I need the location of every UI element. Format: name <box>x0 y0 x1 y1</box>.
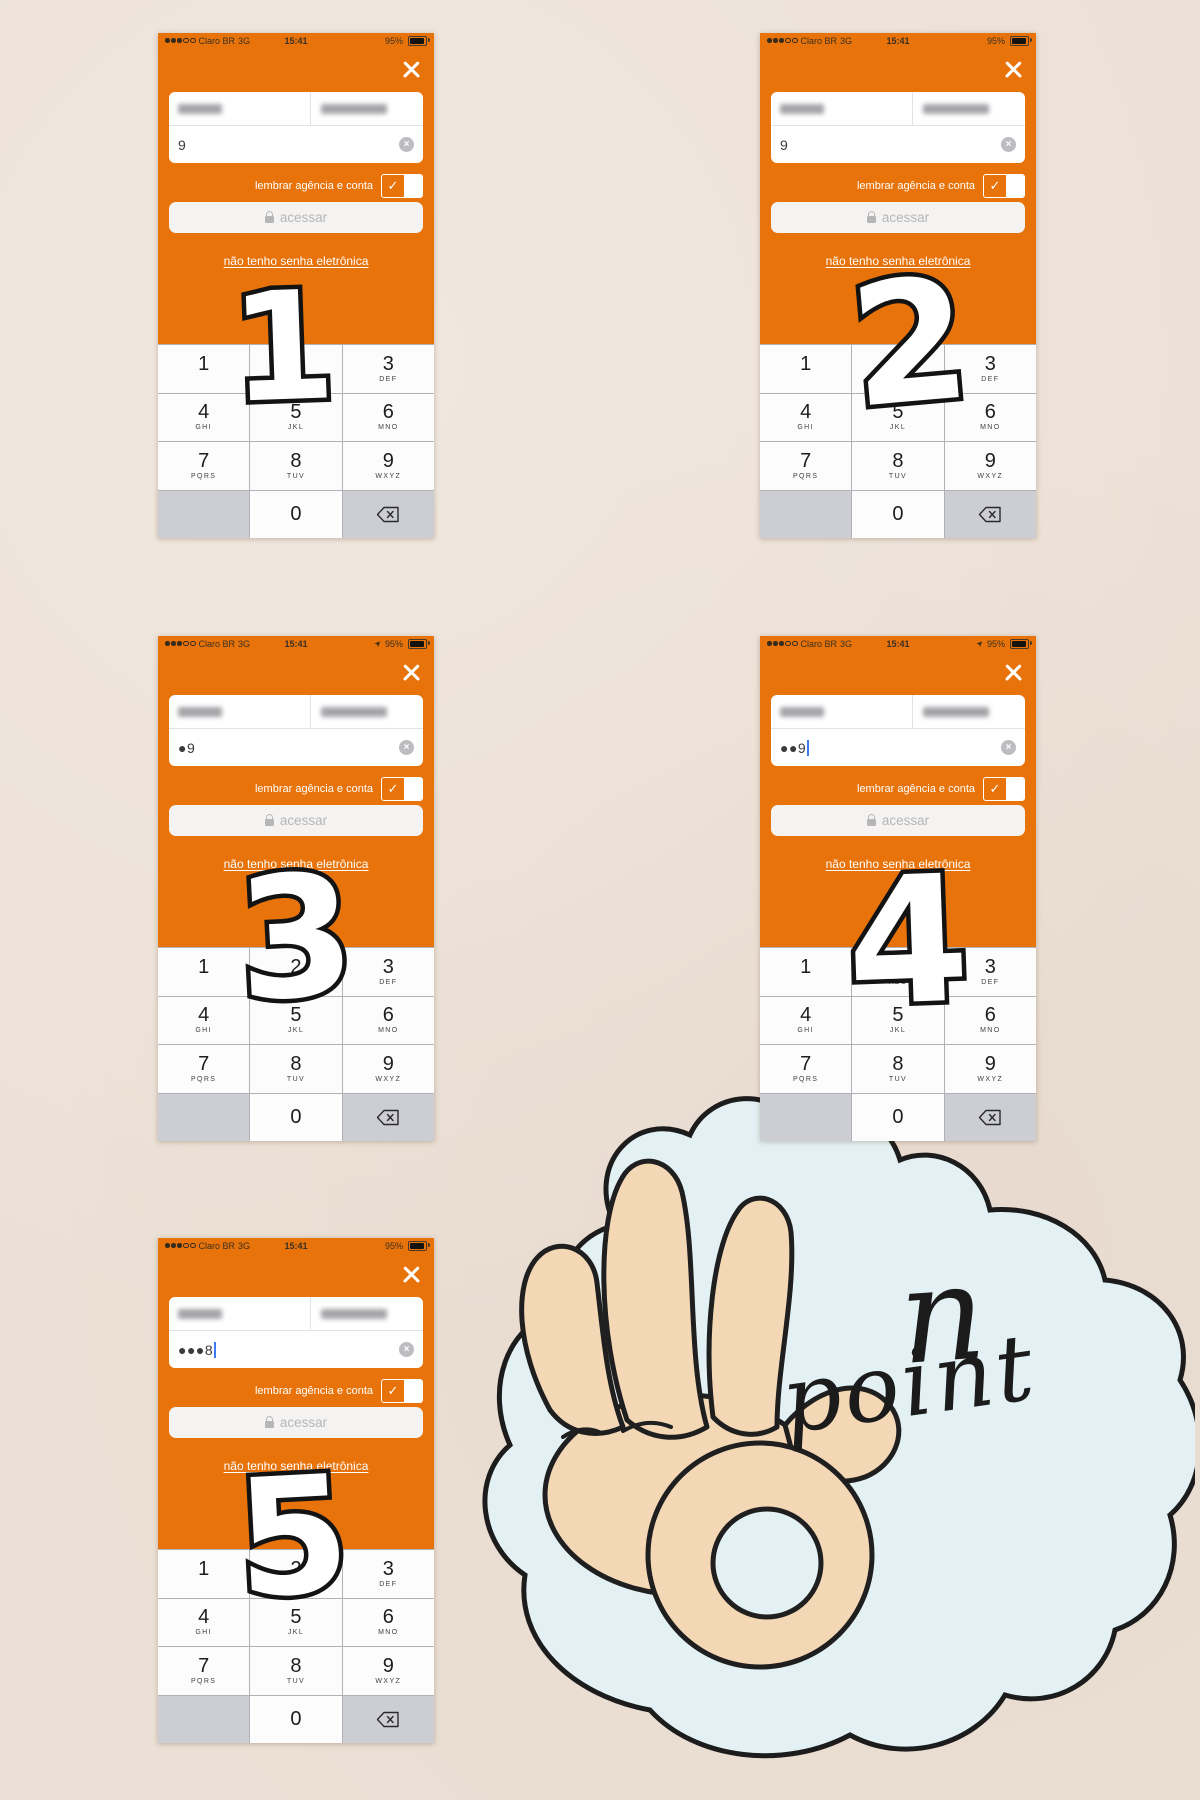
key-8[interactable]: 8TUV <box>250 1647 341 1695</box>
clear-field-icon[interactable]: × <box>399 740 414 755</box>
battery-percent-label: 95% <box>385 1241 403 1251</box>
backspace-icon <box>376 1711 400 1728</box>
key-1[interactable]: 1 <box>158 948 249 996</box>
battery-icon <box>408 36 427 46</box>
ok-circle-hole <box>713 1509 821 1617</box>
key-9[interactable]: 9WXYZ <box>343 1647 434 1695</box>
ok-hand-sticker: n point <box>455 1095 1195 1775</box>
agencia-input[interactable] <box>771 695 913 728</box>
key-backspace[interactable] <box>343 1696 434 1744</box>
conta-input[interactable] <box>913 695 1025 728</box>
conta-value-blurred <box>321 707 387 717</box>
key-8[interactable]: 8TUV <box>852 442 943 490</box>
key-9[interactable]: 9WXYZ <box>945 1045 1036 1093</box>
key-7[interactable]: 7PQRS <box>158 442 249 490</box>
close-icon[interactable] <box>402 1265 421 1284</box>
senha-input[interactable]: 9 × <box>771 126 1025 163</box>
key-5[interactable]: 5JKL <box>250 1599 341 1647</box>
check-icon: ✓ <box>984 175 1006 197</box>
agencia-input[interactable] <box>771 92 913 125</box>
conta-input[interactable] <box>311 695 423 728</box>
remember-row: lembrar agência e conta ✓ <box>255 777 423 801</box>
key-backspace[interactable] <box>945 491 1036 539</box>
remember-toggle[interactable]: ✓ <box>381 174 423 198</box>
battery-icon <box>408 639 427 649</box>
backspace-icon <box>376 1109 400 1126</box>
remember-label: lembrar agência e conta <box>857 783 975 795</box>
status-bar: Claro BR 3G 15:41 ➤ 95% <box>158 1238 434 1253</box>
numeric-keypad: 1 2ABC 3DEF 4GHI 5JKL 6MNO 7PQRS 8TUV 9W… <box>158 947 434 1141</box>
numeric-keypad: 1 2ABC 3DEF 4GHI 5JKL 6MNO 7PQRS 8TUV 9W… <box>760 344 1036 538</box>
login-fields-card: ●9 × <box>169 695 423 766</box>
toggle-knob <box>404 1380 422 1402</box>
close-icon[interactable] <box>1004 663 1023 682</box>
remember-toggle[interactable]: ✓ <box>983 777 1025 801</box>
key-1[interactable]: 1 <box>760 345 851 393</box>
key-9[interactable]: 9WXYZ <box>343 442 434 490</box>
acessar-button[interactable]: acessar <box>169 1407 423 1438</box>
conta-input[interactable] <box>311 1297 423 1330</box>
location-arrow-icon: ➤ <box>975 638 985 648</box>
key-2[interactable]: 2ABC <box>250 345 341 393</box>
lock-icon <box>265 1421 274 1428</box>
agencia-value-blurred <box>780 707 824 717</box>
acessar-label: acessar <box>882 210 929 225</box>
senha-input[interactable]: ●●9 × <box>771 729 1025 766</box>
close-icon[interactable] <box>402 60 421 79</box>
status-bar: Claro BR 3G 15:41 ➤ 95% <box>760 33 1036 48</box>
senha-value: 9 <box>178 137 186 153</box>
agencia-value-blurred <box>178 1309 222 1319</box>
key-8[interactable]: 8TUV <box>250 1045 341 1093</box>
numeric-keypad: 1 2ABC 3DEF 4GHI 5JKL 6MNO 7PQRS 8TUV 9W… <box>158 344 434 538</box>
keypad-blank <box>158 491 249 539</box>
clear-field-icon[interactable]: × <box>1001 740 1016 755</box>
remember-row: lembrar agência e conta ✓ <box>255 1379 423 1403</box>
network-type-label: 3G <box>238 36 250 46</box>
carrier-label: Claro BR <box>199 36 236 46</box>
key-6[interactable]: 6MNO <box>343 394 434 442</box>
backspace-icon <box>978 506 1002 523</box>
numeric-keypad: 1 2ABC 3DEF 4GHI 5JKL 6MNO 7PQRS 8TUV 9W… <box>760 947 1036 1141</box>
key-4[interactable]: 4GHI <box>760 997 851 1045</box>
clock-label: 15:41 <box>886 36 909 46</box>
acessar-button[interactable]: acessar <box>169 202 423 233</box>
key-8[interactable]: 8TUV <box>250 442 341 490</box>
clear-field-icon[interactable]: × <box>399 1342 414 1357</box>
no-password-link[interactable]: não tenho senha eletrônica <box>158 254 434 268</box>
clock-label: 15:41 <box>284 1241 307 1251</box>
clock-label: 15:41 <box>284 639 307 649</box>
check-icon: ✓ <box>382 1380 404 1402</box>
key-2[interactable]: 2ABC <box>250 1550 341 1598</box>
key-5[interactable]: 5JKL <box>250 997 341 1045</box>
login-fields-card: 9 × <box>169 92 423 163</box>
close-icon[interactable] <box>1004 60 1023 79</box>
check-icon: ✓ <box>382 778 404 800</box>
signal-strength-icon <box>165 1243 196 1249</box>
key-3[interactable]: 3DEF <box>945 345 1036 393</box>
remember-toggle[interactable]: ✓ <box>381 1379 423 1403</box>
acessar-label: acessar <box>280 813 327 828</box>
remember-label: lembrar agência e conta <box>857 180 975 192</box>
keypad-blank <box>760 491 851 539</box>
check-icon: ✓ <box>382 175 404 197</box>
toggle-knob <box>1006 175 1024 197</box>
key-4[interactable]: 4GHI <box>760 394 851 442</box>
check-icon: ✓ <box>984 778 1006 800</box>
conta-value-blurred <box>923 104 989 114</box>
network-type-label: 3G <box>238 1241 250 1251</box>
conta-input[interactable] <box>311 92 423 125</box>
key-4[interactable]: 4GHI <box>158 997 249 1045</box>
acessar-label: acessar <box>280 210 327 225</box>
battery-percent-label: 95% <box>987 639 1005 649</box>
conta-value-blurred <box>321 104 387 114</box>
remember-row: lembrar agência e conta ✓ <box>255 174 423 198</box>
location-arrow-icon: ➤ <box>373 638 383 648</box>
carrier-label: Claro BR <box>801 639 838 649</box>
toggle-knob <box>404 175 422 197</box>
key-6[interactable]: 6MNO <box>343 1599 434 1647</box>
status-bar: Claro BR 3G 15:41 ➤ 95% <box>760 636 1036 651</box>
toggle-knob <box>1006 778 1024 800</box>
key-4[interactable]: 4GHI <box>158 394 249 442</box>
acessar-button[interactable]: acessar <box>771 202 1025 233</box>
senha-input[interactable]: 9 × <box>169 126 423 163</box>
senha-value: ●●●8 <box>178 1342 213 1358</box>
conta-input[interactable] <box>913 92 1025 125</box>
phone-screenshot-2: Claro BR 3G 15:41 ➤ 95% 9 × <box>760 33 1036 538</box>
battery-icon <box>1010 36 1029 46</box>
key-backspace[interactable] <box>343 1094 434 1142</box>
key-5[interactable]: 5JKL <box>852 394 943 442</box>
no-password-link[interactable]: não tenho senha eletrônica <box>158 1459 434 1473</box>
key-9[interactable]: 9WXYZ <box>343 1045 434 1093</box>
key-backspace[interactable] <box>343 491 434 539</box>
remember-toggle[interactable]: ✓ <box>983 174 1025 198</box>
key-0[interactable]: 0 <box>852 1094 943 1142</box>
keypad-blank <box>760 1094 851 1142</box>
agencia-value-blurred <box>780 104 824 114</box>
carrier-label: Claro BR <box>801 36 838 46</box>
agencia-input[interactable] <box>169 92 311 125</box>
clock-label: 15:41 <box>284 36 307 46</box>
close-icon[interactable] <box>402 663 421 682</box>
keypad-blank <box>158 1696 249 1744</box>
acessar-button[interactable]: acessar <box>771 805 1025 836</box>
conta-value-blurred <box>923 707 989 717</box>
remember-row: lembrar agência e conta ✓ <box>857 777 1025 801</box>
network-type-label: 3G <box>840 36 852 46</box>
phone-screenshot-4: Claro BR 3G 15:41 ➤ 95% ●●9 × <box>760 636 1036 1141</box>
key-3[interactable]: 3DEF <box>945 948 1036 996</box>
key-1[interactable]: 1 <box>158 1550 249 1598</box>
backspace-icon <box>376 506 400 523</box>
key-0[interactable]: 0 <box>250 491 341 539</box>
login-fields-card: ●●●8 × <box>169 1297 423 1368</box>
remember-toggle[interactable]: ✓ <box>381 777 423 801</box>
login-fields-card: 9 × <box>771 92 1025 163</box>
key-2[interactable]: 2ABC <box>852 345 943 393</box>
phone-screenshot-3: Claro BR 3G 15:41 ➤ 95% ●9 × <box>158 636 434 1141</box>
text-cursor <box>807 740 809 756</box>
battery-icon <box>1010 639 1029 649</box>
acessar-label: acessar <box>280 1415 327 1430</box>
key-7[interactable]: 7PQRS <box>760 442 851 490</box>
lock-icon <box>867 216 876 223</box>
signal-strength-icon <box>165 641 196 647</box>
key-3[interactable]: 3DEF <box>343 948 434 996</box>
senha-value: ●9 <box>178 740 195 756</box>
battery-percent-label: 95% <box>385 639 403 649</box>
collage-canvas: n point Claro BR 3G 15:41 ➤ 95% 9 <box>0 0 1200 1800</box>
phone-screenshot-1: Claro BR 3G 15:41 ➤ 95% 9 × <box>158 33 434 538</box>
key-7[interactable]: 7PQRS <box>158 1045 249 1093</box>
key-4[interactable]: 4GHI <box>158 1599 249 1647</box>
key-3[interactable]: 3DEF <box>343 345 434 393</box>
network-type-label: 3G <box>238 639 250 649</box>
signal-strength-icon <box>165 38 196 44</box>
battery-percent-label: 95% <box>987 36 1005 46</box>
clear-field-icon[interactable]: × <box>1001 137 1016 152</box>
phone-screenshot-5: Claro BR 3G 15:41 ➤ 95% ●●●8 × <box>158 1238 434 1743</box>
key-backspace[interactable] <box>945 1094 1036 1142</box>
text-cursor <box>214 1342 216 1358</box>
key-7[interactable]: 7PQRS <box>760 1045 851 1093</box>
agencia-value-blurred <box>178 104 222 114</box>
senha-value: ●●9 <box>780 740 806 756</box>
signal-strength-icon <box>767 641 798 647</box>
battery-percent-label: 95% <box>385 36 403 46</box>
key-5[interactable]: 5JKL <box>852 997 943 1045</box>
agencia-input[interactable] <box>169 1297 311 1330</box>
key-6[interactable]: 6MNO <box>343 997 434 1045</box>
battery-icon <box>408 1241 427 1251</box>
acessar-label: acessar <box>882 813 929 828</box>
key-0[interactable]: 0 <box>250 1094 341 1142</box>
key-0[interactable]: 0 <box>852 491 943 539</box>
key-5[interactable]: 5JKL <box>250 394 341 442</box>
remember-label: lembrar agência e conta <box>255 180 373 192</box>
key-7[interactable]: 7PQRS <box>158 1647 249 1695</box>
status-bar: Claro BR 3G 15:41 ➤ 95% <box>158 33 434 48</box>
key-2[interactable]: 2ABC <box>250 948 341 996</box>
remember-row: lembrar agência e conta ✓ <box>857 174 1025 198</box>
key-8[interactable]: 8TUV <box>852 1045 943 1093</box>
remember-label: lembrar agência e conta <box>255 783 373 795</box>
senha-input[interactable]: ●9 × <box>169 729 423 766</box>
lock-icon <box>867 819 876 826</box>
lock-icon <box>265 819 274 826</box>
remember-label: lembrar agência e conta <box>255 1385 373 1397</box>
clock-label: 15:41 <box>886 639 909 649</box>
conta-value-blurred <box>321 1309 387 1319</box>
numeric-keypad: 1 2ABC 3DEF 4GHI 5JKL 6MNO 7PQRS 8TUV 9W… <box>158 1549 434 1743</box>
no-password-link[interactable]: não tenho senha eletrônica <box>760 254 1036 268</box>
login-fields-card: ●●9 × <box>771 695 1025 766</box>
lock-icon <box>265 216 274 223</box>
agencia-value-blurred <box>178 707 222 717</box>
signal-strength-icon <box>767 38 798 44</box>
toggle-knob <box>404 778 422 800</box>
carrier-label: Claro BR <box>199 1241 236 1251</box>
network-type-label: 3G <box>840 639 852 649</box>
key-6[interactable]: 6MNO <box>945 997 1036 1045</box>
key-1[interactable]: 1 <box>158 345 249 393</box>
key-0[interactable]: 0 <box>250 1696 341 1744</box>
key-2[interactable]: 2ABC <box>852 948 943 996</box>
status-bar: Claro BR 3G 15:41 ➤ 95% <box>158 636 434 651</box>
clear-field-icon[interactable]: × <box>399 137 414 152</box>
senha-input[interactable]: ●●●8 × <box>169 1331 423 1368</box>
key-9[interactable]: 9WXYZ <box>945 442 1036 490</box>
key-1[interactable]: 1 <box>760 948 851 996</box>
backspace-icon <box>978 1109 1002 1126</box>
agencia-input[interactable] <box>169 695 311 728</box>
acessar-button[interactable]: acessar <box>169 805 423 836</box>
no-password-link[interactable]: não tenho senha eletrônica <box>760 857 1036 871</box>
carrier-label: Claro BR <box>199 639 236 649</box>
key-3[interactable]: 3DEF <box>343 1550 434 1598</box>
key-6[interactable]: 6MNO <box>945 394 1036 442</box>
senha-value: 9 <box>780 137 788 153</box>
no-password-link[interactable]: não tenho senha eletrônica <box>158 857 434 871</box>
keypad-blank <box>158 1094 249 1142</box>
